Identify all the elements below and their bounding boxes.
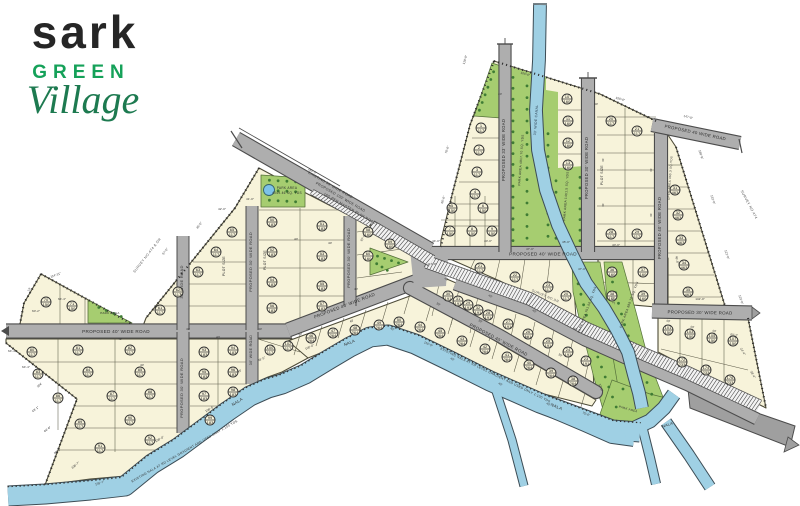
- svg-text:117: 117: [75, 350, 82, 355]
- svg-text:264: 264: [570, 381, 577, 386]
- svg-text:191: 191: [485, 315, 492, 320]
- svg-text:40': 40': [354, 287, 358, 291]
- svg-text:264: 264: [437, 333, 444, 338]
- svg-text:183: 183: [269, 282, 276, 287]
- svg-text:PLOT SIZE: PLOT SIZE: [263, 250, 267, 270]
- svg-text:150: 150: [69, 306, 76, 311]
- svg-text:PARK AREA: PARK AREA: [100, 311, 119, 315]
- svg-text:40': 40': [258, 327, 262, 331]
- svg-text:4049.46 SQ. YDS: 4049.46 SQ. YDS: [272, 191, 302, 195]
- svg-text:45'-0": 45'-0": [562, 240, 570, 244]
- svg-text:40: 40: [601, 158, 605, 162]
- svg-text:PROPOSED 30' WIDE ROAD: PROPOSED 30' WIDE ROAD: [179, 358, 184, 418]
- svg-text:191: 191: [465, 305, 472, 310]
- svg-text:183: 183: [319, 256, 326, 261]
- svg-text:150: 150: [469, 231, 476, 236]
- svg-text:117: 117: [55, 398, 62, 403]
- svg-text:PARK AREA: PARK AREA: [277, 186, 298, 190]
- svg-text:183: 183: [269, 308, 276, 313]
- svg-text:264: 264: [459, 341, 466, 346]
- svg-text:264: 264: [396, 322, 403, 327]
- svg-text:160: 160: [640, 272, 647, 277]
- svg-text:183: 183: [230, 350, 237, 355]
- svg-text:264: 264: [482, 349, 489, 354]
- svg-text:117: 117: [267, 350, 274, 355]
- svg-text:40'-0": 40'-0": [612, 243, 620, 247]
- svg-text:PROPOSED 30' WIDE ROAD: PROPOSED 30' WIDE ROAD: [248, 232, 253, 292]
- svg-text:264: 264: [526, 365, 533, 370]
- svg-text:160: 160: [565, 143, 572, 148]
- svg-text:160: 160: [365, 256, 372, 261]
- svg-text:40': 40': [646, 115, 650, 119]
- svg-text:183: 183: [319, 226, 326, 231]
- svg-text:264: 264: [548, 373, 555, 378]
- svg-text:160: 160: [564, 99, 571, 104]
- svg-text:PROPOSED 40' WIDE ROAD: PROPOSED 40' WIDE ROAD: [657, 197, 662, 259]
- svg-text:117: 117: [127, 350, 134, 355]
- svg-text:160: 160: [387, 244, 394, 249]
- svg-text:264: 264: [417, 327, 424, 332]
- svg-text:117: 117: [77, 424, 84, 429]
- svg-text:264: 264: [308, 338, 315, 343]
- svg-text:160: 160: [609, 272, 616, 277]
- svg-text:117: 117: [608, 234, 615, 239]
- svg-text:233: 233: [679, 362, 686, 367]
- svg-text:233: 233: [703, 370, 710, 375]
- svg-text:117: 117: [195, 272, 202, 277]
- svg-text:60'-2": 60'-2": [32, 309, 40, 313]
- svg-text:sark: sark: [32, 6, 139, 58]
- svg-text:183: 183: [201, 396, 208, 401]
- svg-text:150: 150: [489, 231, 496, 236]
- svg-text:117: 117: [477, 268, 484, 273]
- svg-text:PROPOSED 30' WIDE ROAD: PROPOSED 30' WIDE ROAD: [346, 228, 351, 288]
- svg-text:183: 183: [201, 352, 208, 357]
- svg-text:117: 117: [474, 172, 481, 177]
- svg-text:40': 40': [328, 241, 332, 245]
- svg-text:40': 40': [118, 337, 122, 341]
- svg-text:40': 40': [216, 335, 220, 339]
- svg-text:117: 117: [545, 287, 552, 292]
- svg-text:117: 117: [608, 121, 615, 126]
- svg-text:117: 117: [472, 194, 479, 199]
- svg-text:117: 117: [634, 131, 641, 136]
- svg-text:64'-4": 64'-4": [8, 349, 16, 353]
- svg-text:191: 191: [445, 296, 452, 301]
- svg-text:183: 183: [269, 252, 276, 257]
- svg-text:150: 150: [665, 330, 672, 335]
- svg-text:183: 183: [201, 374, 208, 379]
- svg-text:264: 264: [330, 333, 337, 338]
- svg-text:233: 233: [727, 380, 734, 385]
- svg-text:40': 40': [294, 237, 298, 241]
- svg-text:PROPOSED 30' WIDE ROAD: PROPOSED 30' WIDE ROAD: [584, 137, 589, 199]
- svg-text:117: 117: [563, 296, 570, 301]
- svg-text:41'-0": 41'-0": [246, 197, 254, 201]
- svg-text:40': 40': [186, 327, 190, 331]
- svg-text:42'-0": 42'-0": [218, 207, 226, 211]
- svg-text:160: 160: [565, 165, 572, 170]
- svg-text:463: 463: [681, 265, 688, 270]
- svg-text:117: 117: [157, 310, 164, 315]
- svg-text:117: 117: [97, 448, 104, 453]
- svg-text:117: 117: [127, 420, 134, 425]
- svg-text:183: 183: [269, 222, 276, 227]
- svg-text:117: 117: [29, 352, 36, 357]
- svg-text:191: 191: [455, 301, 462, 306]
- svg-text:150: 150: [43, 302, 50, 307]
- svg-text:264: 264: [376, 325, 383, 330]
- svg-text:117: 117: [147, 440, 154, 445]
- svg-text:150: 150: [709, 338, 716, 343]
- svg-text:40: 40: [601, 203, 605, 207]
- svg-text:117: 117: [213, 252, 220, 257]
- svg-text:183: 183: [319, 286, 326, 291]
- svg-text:117: 117: [85, 372, 92, 377]
- svg-text:191: 191: [505, 324, 512, 329]
- svg-text:PROPOSED 40' WIDE ROAD: PROPOSED 40' WIDE ROAD: [82, 329, 150, 334]
- svg-text:47'-0": 47'-0": [578, 267, 586, 271]
- svg-text:117: 117: [137, 372, 144, 377]
- svg-text:160: 160: [565, 121, 572, 126]
- svg-text:183: 183: [230, 372, 237, 377]
- svg-text:117: 117: [478, 128, 485, 133]
- svg-text:142'-0": 142'-0": [695, 297, 705, 301]
- svg-text:PROPOSED 33' WIDE ROAD: PROPOSED 33' WIDE ROAD: [501, 119, 506, 181]
- svg-text:117: 117: [512, 277, 519, 282]
- svg-text:117: 117: [476, 150, 483, 155]
- svg-text:117: 117: [109, 396, 116, 401]
- svg-text:30' WIDE ROAD: 30' WIDE ROAD: [179, 265, 184, 298]
- svg-text:150: 150: [730, 341, 737, 346]
- svg-text:463: 463: [675, 215, 682, 220]
- svg-text:117'-0": 117'-0": [427, 262, 436, 266]
- svg-text:264: 264: [504, 357, 511, 362]
- svg-text:117: 117: [634, 234, 641, 239]
- svg-text:40': 40': [298, 332, 302, 336]
- svg-text:191: 191: [545, 343, 552, 348]
- svg-text:150: 150: [447, 231, 454, 236]
- svg-text:463: 463: [685, 292, 692, 297]
- svg-text:40': 40': [498, 92, 502, 96]
- svg-text:150: 150: [480, 208, 487, 213]
- svg-text:191: 191: [475, 310, 482, 315]
- svg-text:40'-0": 40'-0": [484, 239, 492, 243]
- svg-text:40': 40': [140, 363, 144, 367]
- svg-text:30' WIDE ROAD: 30' WIDE ROAD: [249, 335, 253, 365]
- svg-text:117: 117: [35, 374, 42, 379]
- svg-text:44'-0": 44'-0": [432, 239, 440, 243]
- svg-text:40: 40: [649, 213, 653, 217]
- svg-text:183: 183: [230, 392, 237, 397]
- svg-text:47'-0": 47'-0": [526, 247, 534, 251]
- svg-text:117: 117: [285, 346, 292, 351]
- svg-text:117: 117: [229, 232, 236, 237]
- svg-text:PLOT SIZE: PLOT SIZE: [222, 256, 226, 276]
- svg-text:64'-4": 64'-4": [22, 365, 30, 369]
- svg-text:463: 463: [672, 190, 679, 195]
- svg-text:PLOT SIZE: PLOT SIZE: [600, 165, 604, 185]
- svg-text:117: 117: [147, 394, 154, 399]
- svg-text:150: 150: [687, 334, 694, 339]
- svg-text:463: 463: [678, 240, 685, 245]
- svg-text:264: 264: [352, 330, 359, 335]
- svg-text:Village: Village: [27, 77, 140, 122]
- svg-text:191: 191: [565, 352, 572, 357]
- svg-text:191: 191: [583, 361, 590, 366]
- svg-text:183: 183: [207, 420, 214, 425]
- svg-text:160: 160: [640, 296, 647, 301]
- svg-text:PROPOSED 40' WIDE ROAD: PROPOSED 40' WIDE ROAD: [509, 252, 577, 257]
- svg-text:40': 40': [594, 102, 598, 106]
- svg-text:64'-4": 64'-4": [58, 297, 66, 301]
- svg-text:40: 40: [649, 168, 653, 172]
